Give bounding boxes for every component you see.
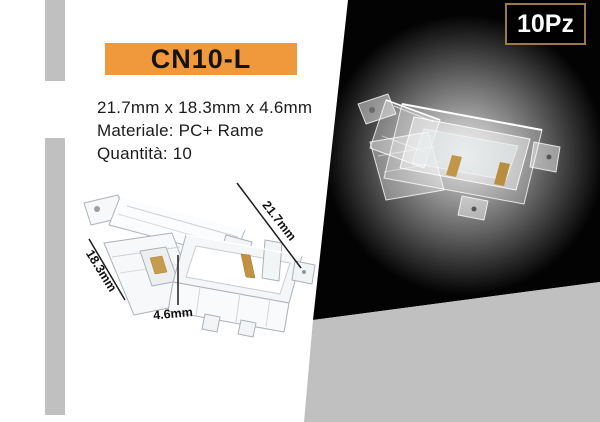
- spec-material: Materiale: PC+ Rame: [97, 119, 327, 142]
- left-accent-bar-bottom: [45, 138, 65, 415]
- left-accent-bar-top: [45, 0, 65, 81]
- spec-dimensions: 21.7mm x 18.3mm x 4.6mm: [97, 96, 327, 119]
- quantity-badge-label: 10Pz: [517, 12, 574, 37]
- background-panels: [0, 0, 600, 422]
- spec-quantity: Quantità: 10: [97, 142, 327, 165]
- model-badge-label: CN10-L: [151, 46, 252, 73]
- quantity-badge: 10Pz: [505, 3, 586, 45]
- spec-list: 21.7mm x 18.3mm x 4.6mm Materiale: PC+ R…: [97, 96, 327, 165]
- product-card: CN10-L 21.7mm x 18.3mm x 4.6mm Materiale…: [0, 0, 600, 422]
- model-badge: CN10-L: [105, 43, 297, 75]
